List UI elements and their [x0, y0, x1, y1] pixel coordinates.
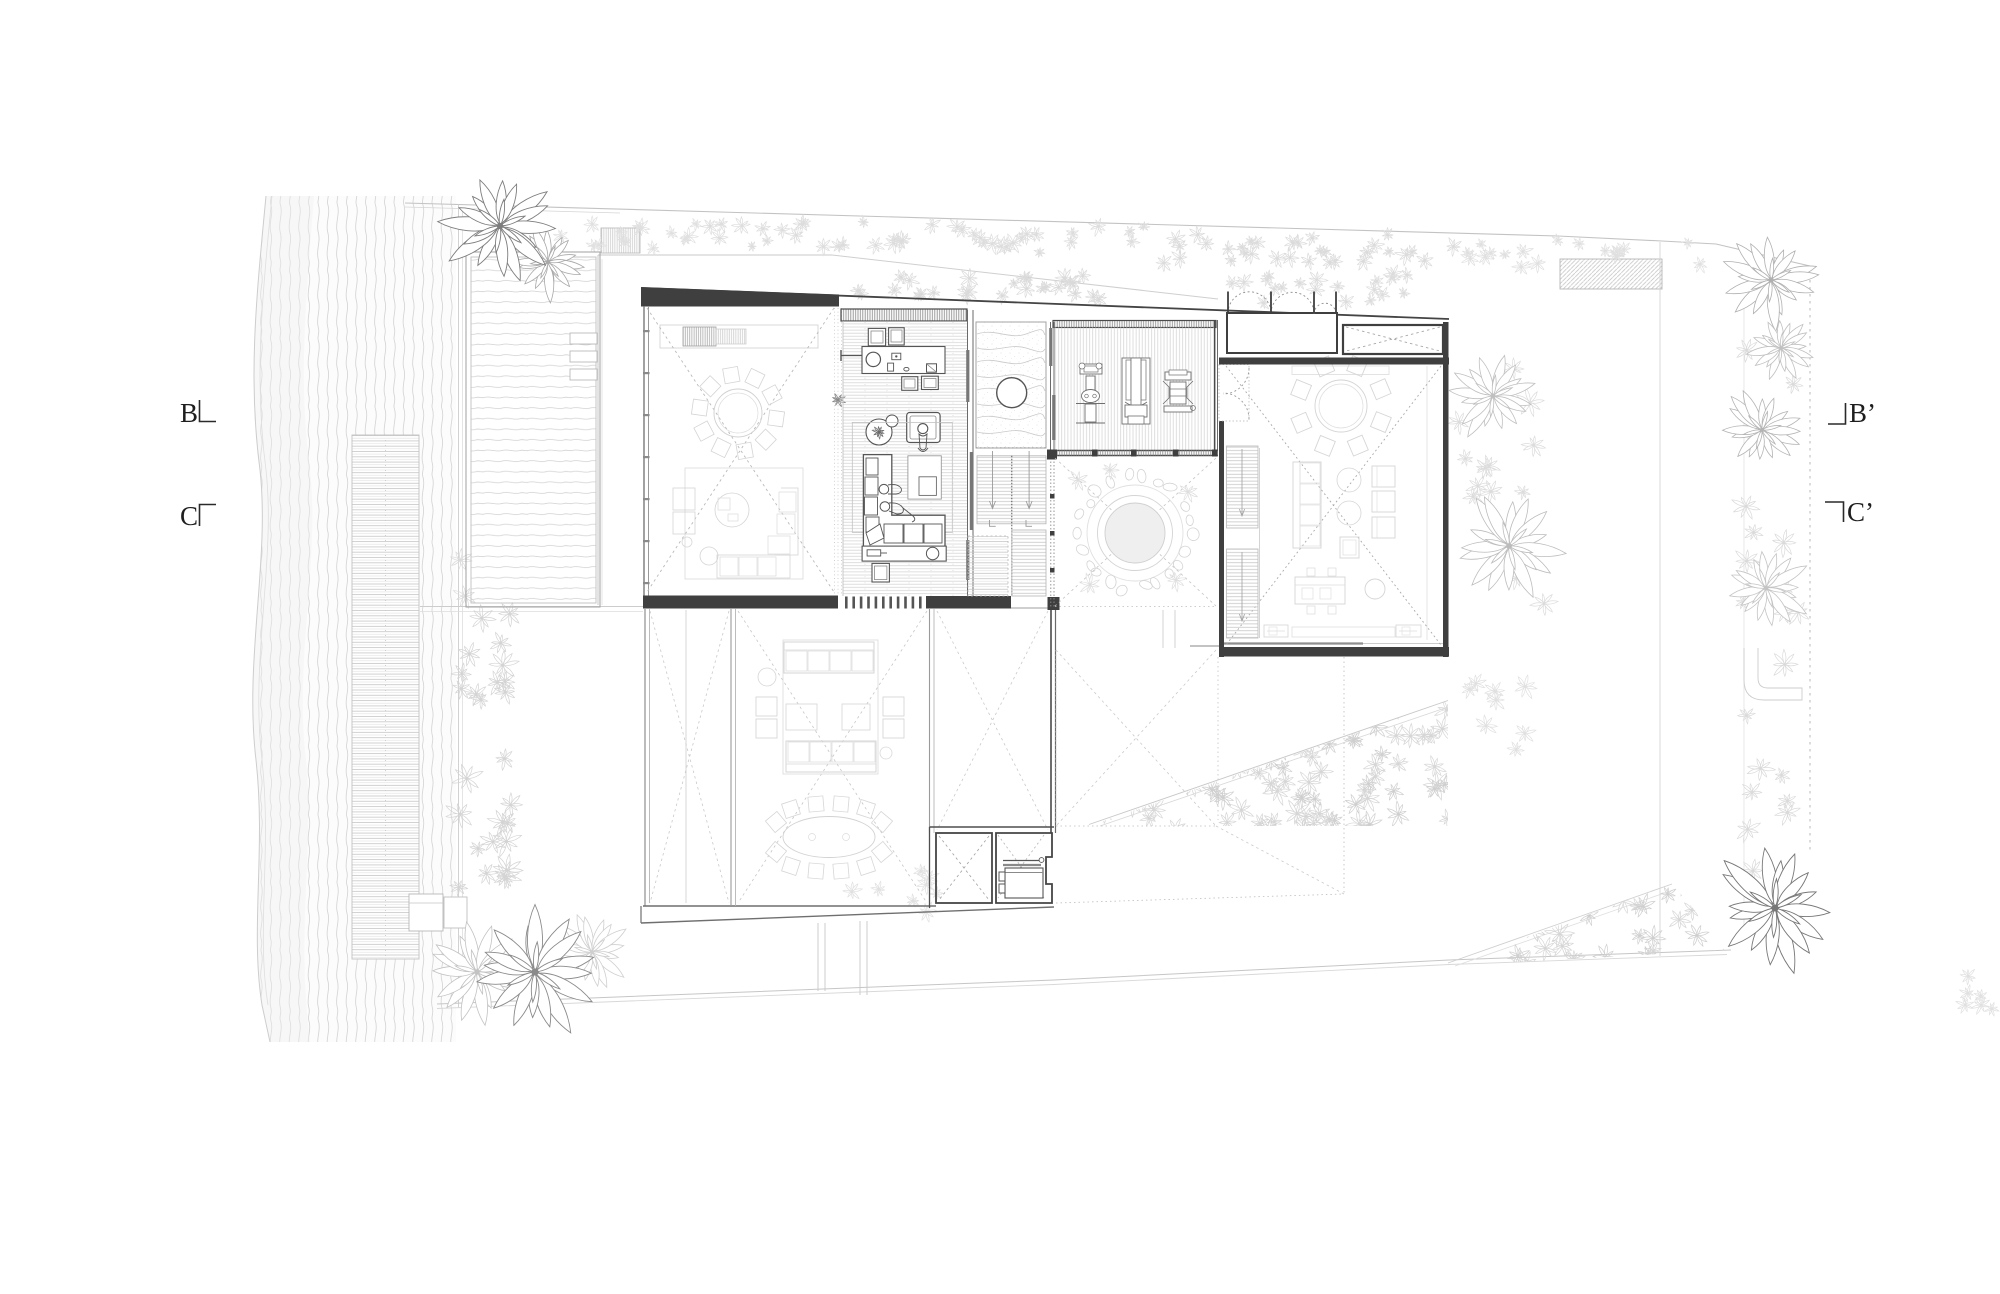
svg-text:C: C	[180, 501, 198, 531]
svg-text:B’: B’	[1849, 398, 1876, 428]
svg-text:C’: C’	[1847, 497, 1874, 527]
svg-text:B: B	[180, 398, 198, 428]
